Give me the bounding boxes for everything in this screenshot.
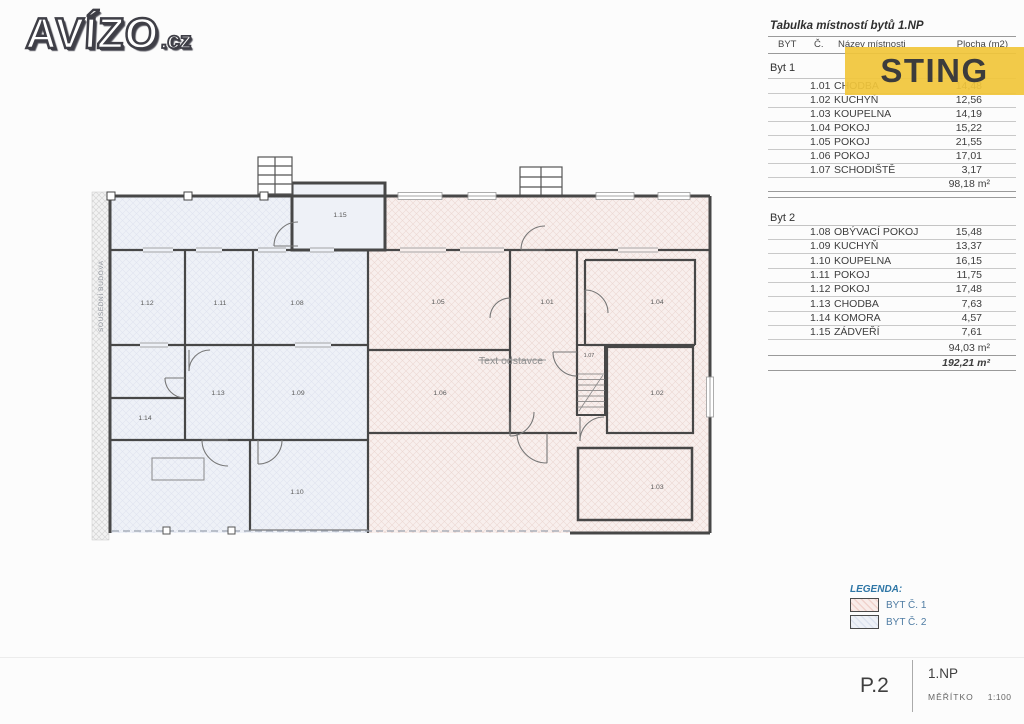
titleblock-divider bbox=[912, 660, 913, 712]
room-number: 1.07 bbox=[810, 164, 830, 176]
byt2-subtotal: 94,03 m² bbox=[768, 342, 1016, 356]
room-name: SCHODIŠTĚ bbox=[834, 164, 895, 176]
room-label-1.15: 1.15 bbox=[333, 212, 346, 219]
legend-item-byt1: BYT Č. 1 bbox=[850, 598, 926, 612]
room-number: 1.12 bbox=[810, 283, 830, 295]
legend: LEGENDA: BYT Č. 1 BYT Č. 2 bbox=[850, 584, 926, 629]
chimney-block-left bbox=[258, 157, 292, 194]
table-row: 1.05POKOJ21,55 bbox=[768, 136, 1016, 150]
room-name: ZÁDVEŘÍ bbox=[834, 326, 880, 338]
table-row: 1.06POKOJ17,01 bbox=[768, 150, 1016, 164]
room-name: OBÝVACÍ POKOJ bbox=[834, 226, 918, 238]
room-number: 1.09 bbox=[810, 240, 830, 252]
neighbor-building-label: SOUSEDNÍ BUDOVA bbox=[96, 260, 105, 332]
room-area: 16,15 bbox=[956, 255, 982, 267]
room-label-1.13: 1.13 bbox=[211, 390, 224, 397]
room-area: 15,22 bbox=[956, 122, 982, 134]
room-area: 7,63 bbox=[962, 298, 982, 310]
byt2-label: Byt 2 bbox=[770, 212, 795, 224]
sting-badge-label: STING bbox=[880, 52, 988, 90]
room-name: POKOJ bbox=[834, 122, 870, 134]
scale-row: MĚŘÍTKO1:100 bbox=[928, 692, 1012, 702]
room-label-1.01: 1.01 bbox=[540, 299, 553, 306]
room-number: 1.04 bbox=[810, 122, 830, 134]
room-label-1.14: 1.14 bbox=[138, 415, 151, 422]
room-label-1.04: 1.04 bbox=[650, 299, 663, 306]
table-row: 1.13CHODBA7,63 bbox=[768, 298, 1016, 312]
room-area: 21,55 bbox=[956, 136, 982, 148]
room-name: KOMORA bbox=[834, 312, 881, 324]
floor-label: 1.NP bbox=[928, 666, 958, 681]
room-name: POKOJ bbox=[834, 283, 870, 295]
table-row: 1.03KOUPELNA14,19 bbox=[768, 108, 1016, 122]
divider bbox=[768, 36, 1016, 37]
header-byt: BYT bbox=[778, 39, 796, 50]
room-area: 17,48 bbox=[956, 283, 982, 295]
byt1-label: Byt 1 bbox=[770, 62, 795, 74]
room-number: 1.13 bbox=[810, 298, 830, 310]
room-number: 1.15 bbox=[810, 326, 830, 338]
room-area: 7,61 bbox=[962, 326, 982, 338]
room-number: 1.05 bbox=[810, 136, 830, 148]
legend-item-byt2: BYT Č. 2 bbox=[850, 615, 926, 629]
logo-brand-text: AVÍZO bbox=[25, 10, 161, 58]
table-title: Tabulka místností bytů 1.NP bbox=[770, 20, 924, 32]
logo-tld-text: .cz bbox=[160, 27, 192, 53]
room-area: 17,01 bbox=[956, 150, 982, 162]
room-number: 1.11 bbox=[810, 269, 830, 281]
room-label-1.06: 1.06 bbox=[433, 390, 446, 397]
sheet-number: P.2 bbox=[860, 674, 889, 698]
scale-label: MĚŘÍTKO bbox=[928, 692, 974, 702]
legend-label: BYT Č. 1 bbox=[886, 600, 926, 611]
room-label-1.10: 1.10 bbox=[290, 489, 303, 496]
table-row: 1.09KUCHYŇ13,37 bbox=[768, 240, 1016, 254]
room-number: 1.08 bbox=[810, 226, 830, 238]
byt1-swatch bbox=[850, 598, 879, 612]
divider bbox=[768, 197, 1016, 198]
byt1-subtotal: 98,18 m² bbox=[768, 178, 1016, 192]
room-label-1.08: 1.08 bbox=[290, 300, 303, 307]
room-name: POKOJ bbox=[834, 269, 870, 281]
room-area: 15,48 bbox=[956, 226, 982, 238]
avizo-logo: AVÍZO.cz bbox=[25, 10, 193, 59]
sheet-divider bbox=[0, 657, 1024, 658]
room-area: 14,19 bbox=[956, 108, 982, 120]
table-row: 1.15ZÁDVEŘÍ7,61 bbox=[768, 326, 1016, 340]
grand-total: 192,21 m² bbox=[768, 357, 1016, 371]
table-row: 1.08OBÝVACÍ POKOJ15,48 bbox=[768, 226, 1016, 240]
room-area: 13,37 bbox=[956, 240, 982, 252]
room-label-1.02: 1.02 bbox=[650, 390, 663, 397]
byt2-swatch bbox=[850, 615, 879, 629]
table-row: 1.10KOUPELNA16,15 bbox=[768, 255, 1016, 269]
table-row: 1.07SCHODIŠTĚ3,17 bbox=[768, 164, 1016, 178]
table-row: 1.02KUCHYŇ12,56 bbox=[768, 94, 1016, 108]
room-name: CHODBA bbox=[834, 298, 879, 310]
room-name: KOUPELNA bbox=[834, 255, 891, 267]
chimney-block-right bbox=[520, 167, 562, 196]
room-number: 1.10 bbox=[810, 255, 830, 267]
paragraph-placeholder: Text odstavce bbox=[478, 355, 546, 367]
svg-text:Text odstavce: Text odstavce bbox=[479, 355, 543, 367]
room-area: 3,17 bbox=[962, 164, 982, 176]
room-area: 11,75 bbox=[957, 269, 983, 281]
room-number: 1.03 bbox=[810, 108, 830, 120]
floorplan-listing-page: SOUSEDNÍ BUDOVA bbox=[0, 0, 1024, 724]
table-row: 1.11POKOJ11,75 bbox=[768, 269, 1016, 283]
room-number: 1.14 bbox=[810, 312, 830, 324]
sting-badge: STING bbox=[845, 47, 1024, 95]
neighbor-building-strip: SOUSEDNÍ BUDOVA bbox=[92, 192, 109, 540]
table-row: 1.12POKOJ17,48 bbox=[768, 283, 1016, 297]
room-name: KUCHYŇ bbox=[834, 94, 878, 106]
room-name: KOUPELNA bbox=[834, 108, 891, 120]
header-no: Č. bbox=[814, 39, 824, 50]
room-label-1.09: 1.09 bbox=[291, 390, 304, 397]
table-row: 1.04POKOJ15,22 bbox=[768, 122, 1016, 136]
room-name: POKOJ bbox=[834, 136, 870, 148]
room-name: POKOJ bbox=[834, 150, 870, 162]
room-number: 1.06 bbox=[810, 150, 830, 162]
table-row: 1.14KOMORA4,57 bbox=[768, 312, 1016, 326]
legend-label: BYT Č. 2 bbox=[886, 617, 926, 628]
room-label-1.07: 1.07 bbox=[584, 353, 595, 359]
scale-value: 1:100 bbox=[988, 692, 1012, 702]
room-label-1.12: 1.12 bbox=[140, 300, 153, 307]
room-label-1.11: 1.11 bbox=[214, 300, 227, 307]
room-number: 1.01 bbox=[810, 80, 830, 92]
room-number: 1.02 bbox=[810, 94, 830, 106]
room-area: 4,57 bbox=[962, 312, 982, 324]
room-label-1.03: 1.03 bbox=[650, 484, 663, 491]
legend-title: LEGENDA: bbox=[850, 584, 926, 595]
room-name: KUCHYŇ bbox=[834, 240, 878, 252]
room-area: 12,56 bbox=[956, 94, 982, 106]
room-label-1.05: 1.05 bbox=[431, 299, 444, 306]
